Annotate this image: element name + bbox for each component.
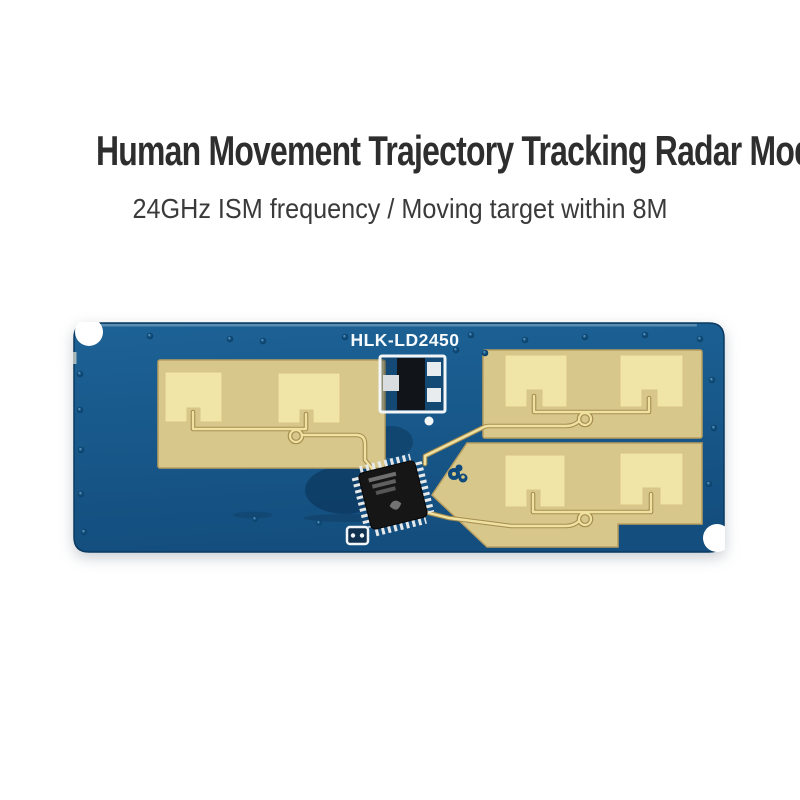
board-left-glare: [73, 352, 77, 364]
page-title: Human Movement Trajectory Tracking Radar…: [96, 127, 704, 175]
pad-footprint: [347, 527, 368, 544]
antenna-block-left: [158, 360, 385, 472]
silkscreen-dot: [425, 417, 434, 426]
component-pad: [383, 375, 399, 391]
product-banner: Human Movement Trajectory Tracking Radar…: [0, 0, 800, 800]
product-photo: HLK-LD2450: [73, 322, 725, 553]
page-subtitle: 24GHz ISM frequency / Moving target with…: [40, 193, 760, 225]
component-pad: [427, 388, 441, 402]
board-top-glare: [99, 324, 697, 327]
board-silkscreen-label: HLK-LD2450: [350, 330, 459, 350]
component-pad: [427, 362, 441, 376]
crystal-component: [397, 358, 425, 410]
pcb-image: HLK-LD2450: [73, 322, 725, 553]
